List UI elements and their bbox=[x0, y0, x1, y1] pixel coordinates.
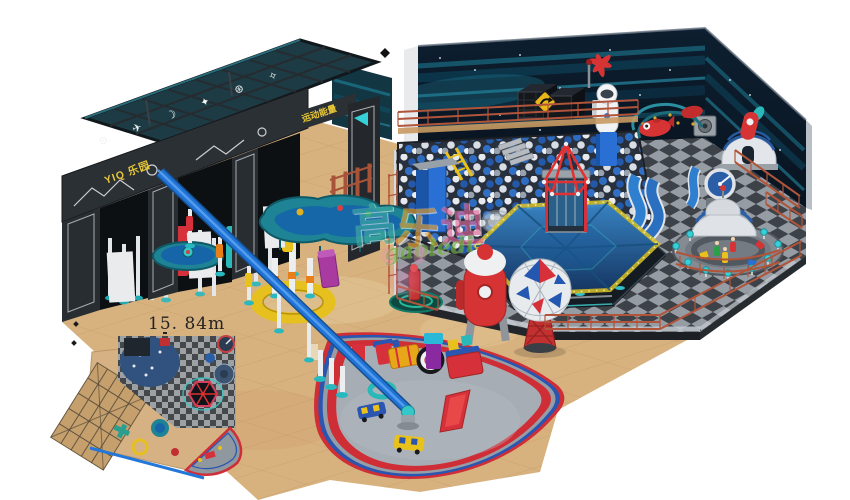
cyan-block bbox=[424, 333, 443, 344]
purple-block bbox=[426, 342, 441, 369]
dimension-marker-diamond bbox=[380, 48, 390, 58]
playground-3d-render: ⚙ ✈ ☽ ✦ ⊛ ✧ YIQ 乐园 运动能量 bbox=[0, 0, 850, 500]
scene-canvas: ⚙ ✈ ☽ ✦ ⊛ ✧ YIQ 乐园 运动能量 bbox=[0, 0, 850, 500]
gear-icon: ⚙ bbox=[96, 133, 110, 149]
floor-plan-inset: 15. 84m bbox=[51, 314, 241, 478]
plan-dimension-label: 15. 84m bbox=[148, 314, 225, 334]
blue-pillar bbox=[596, 132, 617, 166]
glass-tower bbox=[542, 170, 590, 232]
